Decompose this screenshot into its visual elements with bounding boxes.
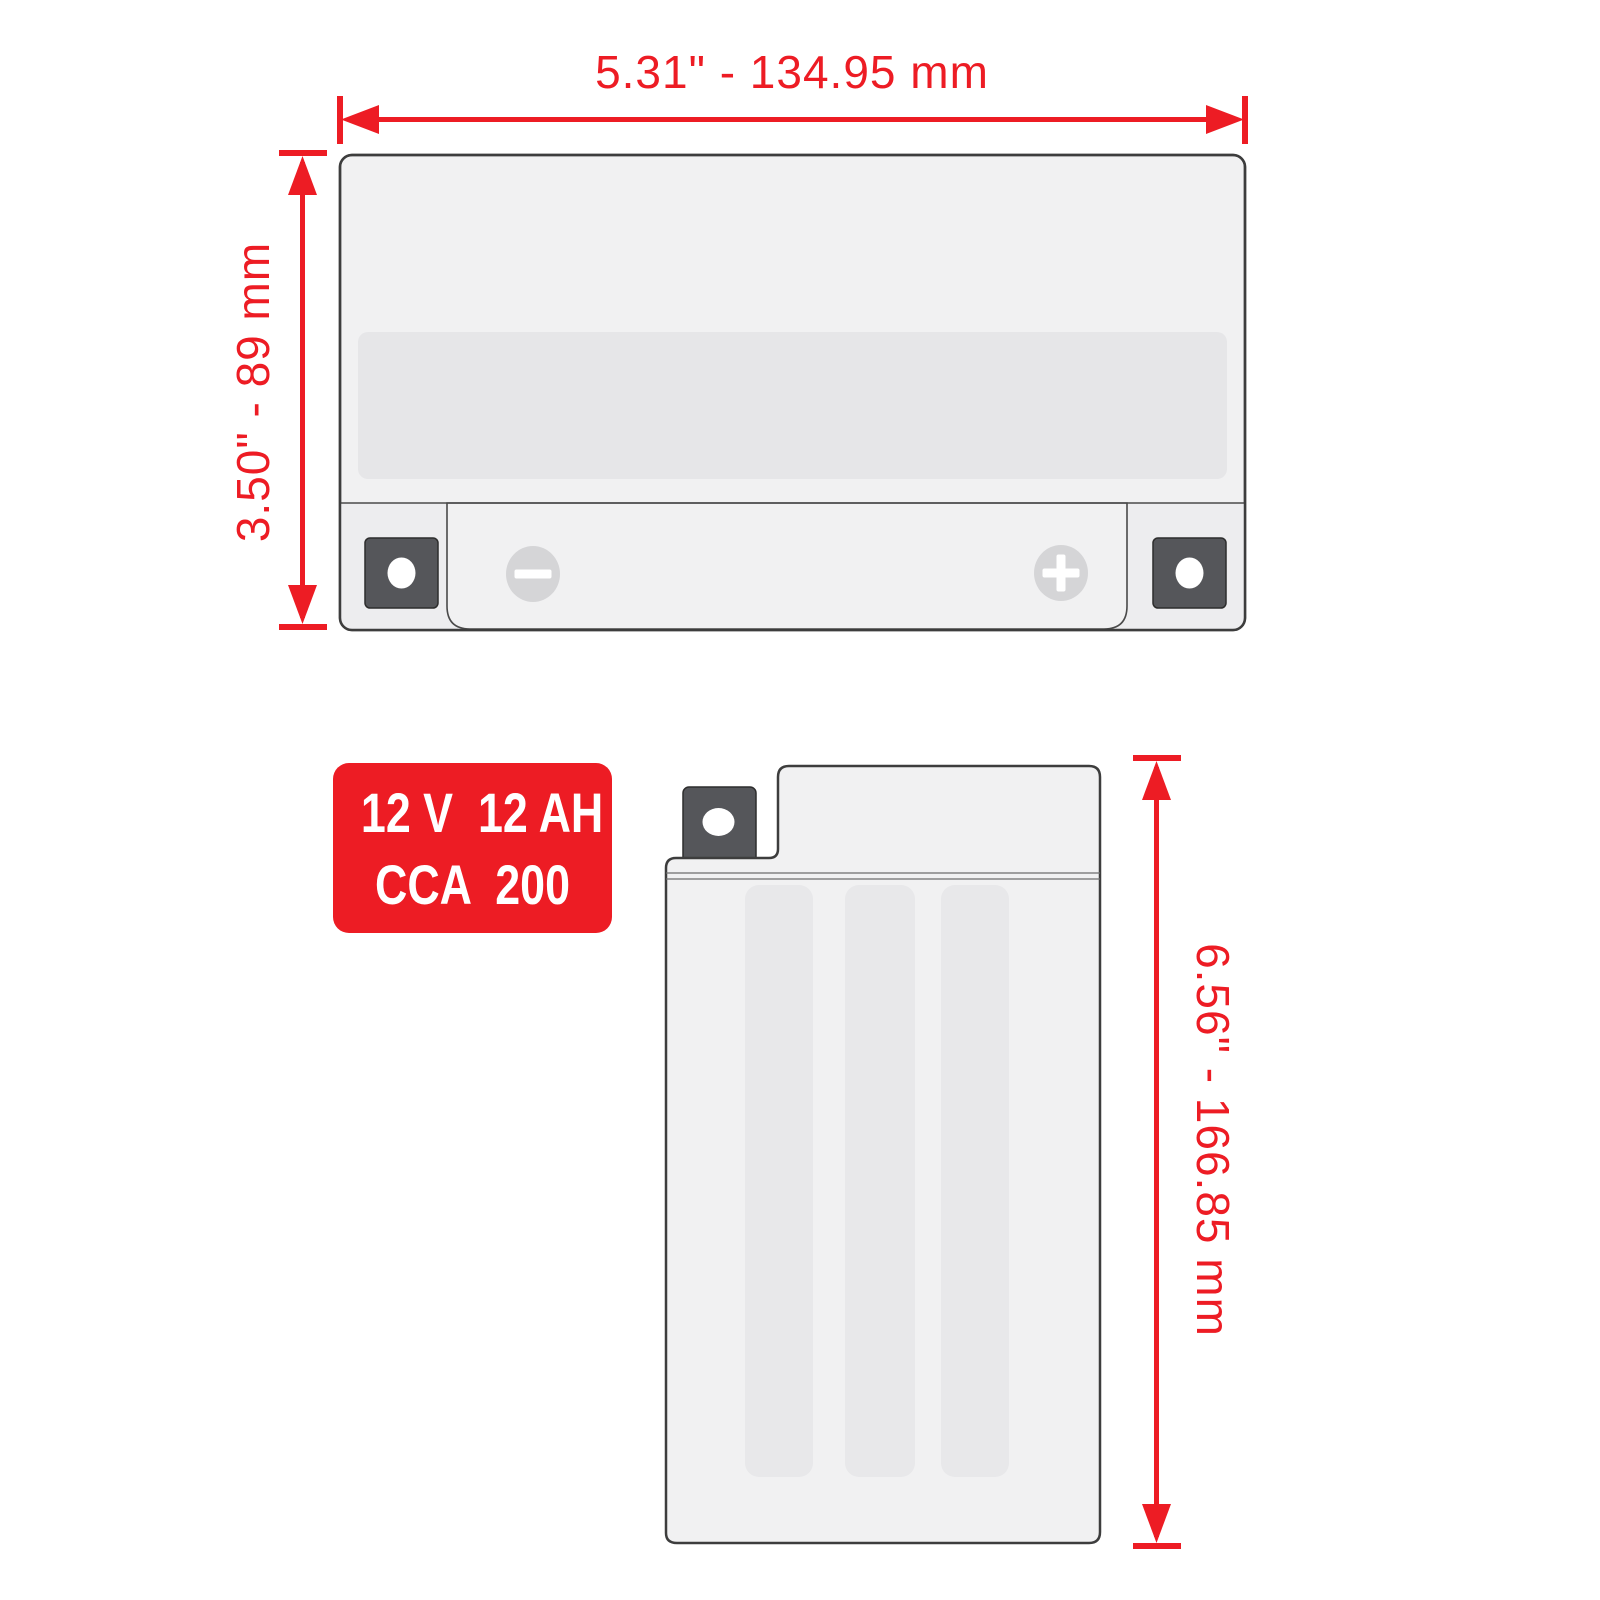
battery-side-view	[666, 766, 1100, 1543]
plate-stripes	[745, 885, 1009, 1477]
dim-tick	[279, 150, 327, 156]
dim-tick	[1242, 96, 1248, 144]
side-height-dimension-arrow	[1133, 755, 1181, 1549]
dim-tick	[337, 96, 343, 144]
battery-dimension-diagram: 5.31" - 134.95 mm 3.50" - 89 mm 6.56" - …	[0, 0, 1600, 1600]
badge-cca-rating: CCA 200	[361, 849, 584, 921]
side-terminal-tab	[683, 787, 756, 863]
dim-tick	[279, 624, 327, 630]
right-mount-bolt	[1153, 538, 1226, 608]
minus-icon	[515, 570, 552, 579]
battery-spec-badge: 12 V 12 AH CCA 200	[333, 763, 612, 933]
arrowhead-left	[341, 105, 379, 134]
bolt-hole-icon	[703, 808, 735, 836]
battery-front-view	[340, 155, 1245, 630]
arrowhead-down	[1142, 1504, 1171, 1543]
front-view-label-band	[358, 332, 1227, 479]
badge-voltage-capacity: 12 V 12 AH	[361, 777, 584, 849]
plate-stripe	[845, 885, 915, 1477]
dim-tick	[1133, 1543, 1181, 1549]
diagram-drawing	[0, 0, 1600, 1600]
arrowhead-up	[288, 156, 317, 195]
bolt-hole-icon	[388, 558, 416, 589]
height-dimension-label: 3.50" - 89 mm	[230, 242, 276, 542]
dim-tick	[1133, 755, 1181, 761]
side-height-dimension-label: 6.56" - 166.85 mm	[1190, 943, 1236, 1337]
negative-terminal	[506, 546, 560, 602]
left-mount-bolt	[365, 538, 438, 608]
arrowhead-down	[288, 585, 317, 624]
plate-stripe	[745, 885, 813, 1477]
arrowhead-up	[1142, 761, 1171, 800]
plate-stripe	[941, 885, 1009, 1477]
dim-line	[352, 117, 1233, 122]
height-dimension-arrow	[279, 150, 327, 630]
positive-terminal	[1034, 545, 1088, 601]
width-dimension-arrow	[337, 96, 1248, 144]
width-dimension-label: 5.31" - 134.95 mm	[595, 49, 989, 95]
dim-line	[300, 162, 305, 618]
dim-line	[1154, 767, 1159, 1537]
bolt-hole-icon	[1176, 558, 1204, 589]
arrowhead-right	[1206, 105, 1244, 134]
